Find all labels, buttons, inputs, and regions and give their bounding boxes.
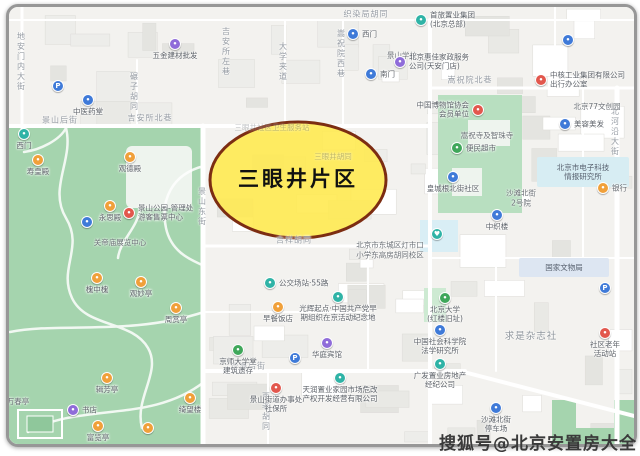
map-poi[interactable]: •槐中槐 — [91, 272, 103, 284]
poi-marker-icon: • — [18, 128, 30, 140]
map-poi[interactable]: •华庭宾馆 — [321, 337, 333, 349]
map-poi[interactable]: •辑芳亭 — [101, 372, 113, 384]
poi-label: 观妙亭 — [130, 289, 153, 298]
map-poi[interactable]: P — [599, 282, 611, 294]
poi-label: 中核工业集团有限公司 出行办公室 — [550, 71, 625, 90]
poi-label: 景山公园-管理处 游客售票中心 — [138, 204, 193, 223]
poi-marker-icon: • — [491, 209, 503, 221]
poi-label: 周赏亭 — [165, 315, 188, 324]
poi-marker-icon: • — [415, 14, 427, 26]
poi-label: 首旅置业集团 (北京总部) — [430, 11, 475, 30]
map-poi[interactable]: • — [562, 34, 574, 46]
poi-label: 华庭宾馆 — [312, 350, 342, 359]
poi-marker-icon: • — [472, 104, 484, 116]
map-poi[interactable]: •京师大学堂 建筑遗存 — [232, 344, 244, 356]
poi-marker-icon: • — [321, 337, 333, 349]
poi-marker-icon: P — [289, 352, 301, 364]
poi-label: 公交场站·55路 — [279, 278, 328, 287]
poi-label: 广发置业房地产 经纪公司 — [414, 371, 467, 390]
map-poi[interactable]: •富览亭 — [92, 420, 104, 432]
page: 地安门内大街景山后街吉安所北巷碾子胡同吉安所左巷大学夹道嵩祝院西巷织染局胡同嵩祝… — [0, 0, 640, 456]
map-poi[interactable]: •美容美发 — [559, 118, 571, 130]
map-poi[interactable]: •周赏亭 — [170, 302, 182, 314]
map-poi[interactable]: •首旅置业集团 (北京总部) — [415, 14, 427, 26]
map-poi[interactable]: •中国社会科学院 法学研究所 — [434, 324, 446, 336]
map-poi[interactable]: • — [142, 422, 154, 434]
poi-label: 西门 — [362, 29, 377, 38]
poi-label: 中国博物馆协会 会员单位 — [417, 101, 470, 120]
poi-marker-icon: • — [232, 344, 244, 356]
poi-label: 美容美发 — [574, 119, 604, 128]
poi-marker-icon: • — [104, 200, 116, 212]
map-poi[interactable]: •便民超市 — [451, 142, 463, 154]
poi-marker-icon: • — [142, 422, 154, 434]
poi-marker-icon: • — [394, 56, 406, 68]
map-poi[interactable]: •公交场站·55路 — [264, 277, 276, 289]
poi-marker-icon: • — [447, 171, 459, 183]
poi-marker-icon: • — [597, 182, 609, 194]
poi-label: 五金建材批发 — [153, 51, 198, 60]
map-poi[interactable]: •景山街道办事处 社保所 — [270, 382, 282, 394]
map-poi[interactable]: •中织楼 — [491, 209, 503, 221]
poi-marker-icon: • — [347, 28, 359, 40]
poi-marker-icon: • — [124, 151, 136, 163]
poi-label: 京师大学堂 建筑遗存 — [219, 357, 257, 376]
poi-marker-icon: P — [52, 80, 64, 92]
poi-marker-icon: • — [334, 372, 346, 384]
poi-label: 皇城根北街社区 — [427, 184, 480, 193]
poi-marker-icon: • — [365, 68, 377, 80]
map-poi[interactable]: •观妙亭 — [135, 276, 147, 288]
map-poi[interactable]: •天润置业家园市场危改 产权开发经营有限公司 — [334, 372, 346, 384]
poi-marker-icon: • — [272, 301, 284, 313]
map-poi[interactable]: •南门 — [365, 68, 377, 80]
poi-marker-icon: • — [535, 74, 547, 86]
poi-marker-icon: • — [434, 324, 446, 336]
map-poi[interactable]: •光辉起点·中国共产党早 期组织在京活动纪念地 — [332, 291, 344, 303]
poi-marker-icon: ♥ — [431, 228, 443, 240]
poi-marker-icon: • — [92, 420, 104, 432]
map-card: 地安门内大街景山后街吉安所北巷碾子胡同吉安所左巷大学夹道嵩祝院西巷织染局胡同嵩祝… — [6, 4, 637, 447]
poi-label: 西门 — [17, 141, 32, 150]
poi-label: 槐中槐 — [86, 285, 109, 294]
map-poi[interactable]: •寿皇殿 — [32, 154, 44, 166]
poi-marker-icon: • — [270, 382, 282, 394]
poi-label: 早餐饭店 — [263, 314, 293, 323]
poi-label: 富览亭 — [87, 433, 110, 442]
poi-marker-icon: • — [91, 272, 103, 284]
map-poi[interactable]: •沙滩北街 停车场 — [490, 402, 502, 414]
poi-marker-icon: • — [562, 34, 574, 46]
poi-marker-icon: • — [451, 142, 463, 154]
poi-label: 景山街道办事处 社保所 — [250, 395, 303, 414]
poi-marker-icon: • — [135, 276, 147, 288]
poi-marker-icon: • — [559, 118, 571, 130]
map-poi[interactable]: P — [289, 352, 301, 364]
poi-marker-icon: • — [169, 38, 181, 50]
poi-label: 永思殿 — [99, 213, 122, 222]
map-poi[interactable]: •西门 — [18, 128, 30, 140]
map[interactable]: 地安门内大街景山后街吉安所北巷碾子胡同吉安所左巷大学夹道嵩祝院西巷织染局胡同嵩祝… — [6, 4, 637, 447]
map-poi[interactable]: •广发置业房地产 经纪公司 — [434, 358, 446, 370]
poi-marker-icon: • — [67, 404, 79, 416]
poi-label: 南门 — [380, 69, 395, 78]
poi-label: 便民超市 — [466, 143, 496, 152]
map-poi[interactable]: •绮望楼 — [184, 392, 196, 404]
map-poi[interactable]: P — [52, 80, 64, 92]
poi-label: 观德殿 — [119, 164, 142, 173]
poi-label: 中医药堂 — [73, 107, 103, 116]
poi-marker-icon: • — [264, 277, 276, 289]
poi-marker-icon: P — [599, 282, 611, 294]
poi-marker-icon: • — [184, 392, 196, 404]
map-poi[interactable]: •北京惠佳家政服务 公司(天安门店) — [394, 56, 406, 68]
poi-marker-icon: • — [81, 216, 93, 228]
poi-marker-icon: • — [82, 94, 94, 106]
poi-marker-icon: • — [170, 302, 182, 314]
map-poi[interactable]: •中核工业集团有限公司 出行办公室 — [535, 74, 547, 86]
poi-marker-icon: • — [332, 291, 344, 303]
highlight-label: 三眼井片区 — [238, 163, 358, 193]
poi-label: 银行 — [612, 183, 627, 192]
poi-label: 寿皇殿 — [27, 167, 50, 176]
poi-label: 北京惠佳家政服务 公司(天安门店) — [409, 53, 469, 72]
poi-label: 天润置业家园市场危改 产权开发经营有限公司 — [303, 385, 378, 404]
map-poi[interactable]: •书店 — [67, 404, 79, 416]
poi-label: 社区老年 活动站 — [590, 340, 620, 359]
map-poi[interactable]: •社区老年 活动站 — [599, 327, 611, 339]
map-poi[interactable]: •银行 — [597, 182, 609, 194]
poi-label: 辑芳亭 — [96, 385, 119, 394]
poi-layer: P•五金建材批发•中医药堂•西门•寿皇殿•观德殿•永思殿•景山公园-管理处 游客… — [6, 4, 637, 447]
map-poi[interactable]: •五金建材批发 — [169, 38, 181, 50]
map-poi[interactable]: •西门 — [347, 28, 359, 40]
poi-label: 中国社会科学院 法学研究所 — [414, 337, 467, 356]
poi-label: 北京大学 (红楼旧址) — [427, 305, 463, 324]
poi-marker-icon: • — [439, 292, 451, 304]
poi-marker-icon: • — [123, 207, 135, 219]
poi-label: 光辉起点·中国共产党早 期组织在京活动纪念地 — [299, 304, 376, 323]
map-poi[interactable]: •北京大学 (红楼旧址) — [439, 292, 451, 304]
map-poi[interactable]: •中医药堂 — [82, 94, 94, 106]
poi-label: 绮望楼 — [179, 405, 202, 414]
map-poi[interactable]: • — [81, 216, 93, 228]
watermark: 搜狐号@北京安置房大全 — [439, 429, 637, 454]
poi-label: 中织楼 — [486, 222, 509, 231]
map-poi[interactable]: •景山公园-管理处 游客售票中心 — [123, 207, 135, 219]
map-poi[interactable]: ♥ — [431, 228, 443, 240]
map-poi[interactable]: •永思殿 — [104, 200, 116, 212]
map-poi[interactable]: •观德殿 — [124, 151, 136, 163]
poi-label: 书店 — [82, 405, 97, 414]
poi-marker-icon: • — [490, 402, 502, 414]
poi-marker-icon: • — [599, 327, 611, 339]
poi-marker-icon: • — [101, 372, 113, 384]
map-poi[interactable]: •早餐饭店 — [272, 301, 284, 313]
poi-marker-icon: • — [434, 358, 446, 370]
poi-marker-icon: • — [32, 154, 44, 166]
map-poi[interactable]: •中国博物馆协会 会员单位 — [472, 104, 484, 116]
map-poi[interactable]: •皇城根北街社区 — [447, 171, 459, 183]
